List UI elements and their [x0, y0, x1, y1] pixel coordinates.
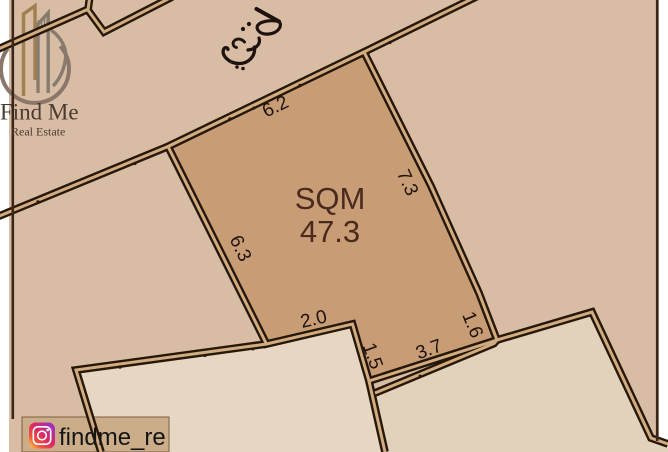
- svg-text:Real Estate: Real Estate: [11, 125, 65, 139]
- svg-text:47.3: 47.3: [300, 214, 360, 249]
- svg-text:SQM: SQM: [295, 181, 366, 216]
- svg-text:Find Me: Find Me: [0, 100, 79, 125]
- svg-text:findme_re: findme_re: [59, 424, 166, 451]
